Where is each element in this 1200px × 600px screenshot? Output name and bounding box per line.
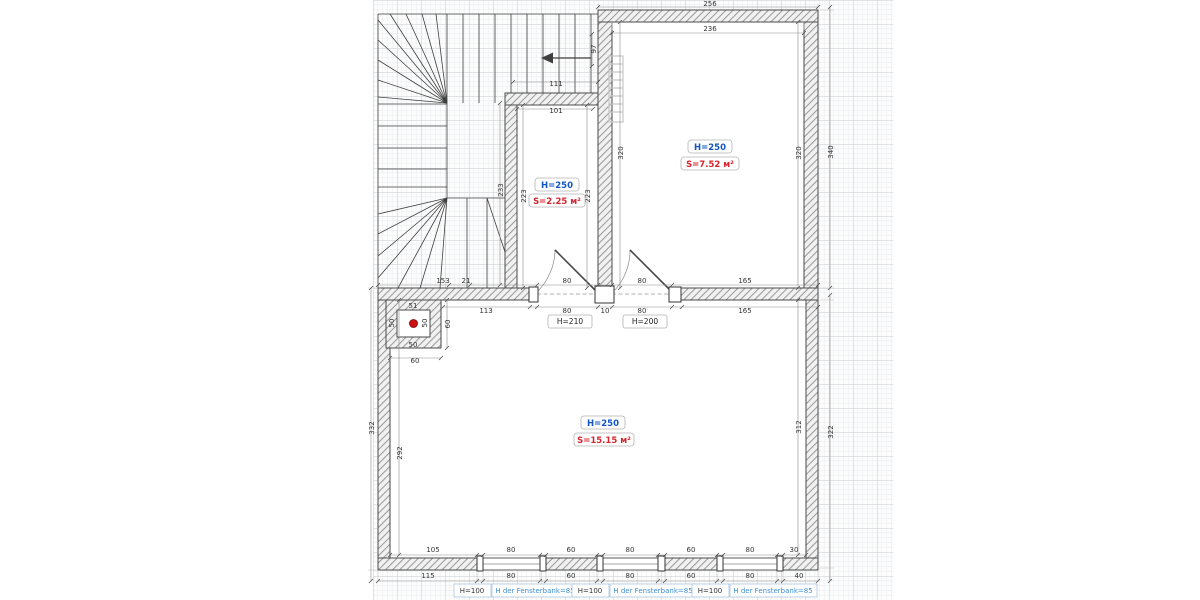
floor-plan-page: 2562369711110132032034023322322315321808… <box>0 0 1200 600</box>
dim-label: 80 <box>746 546 755 554</box>
window-1-labels: H=100 H der Fensterbank=85 <box>454 584 579 597</box>
door-post <box>669 287 681 302</box>
wall-segment-main-right <box>806 300 818 558</box>
room-area-label: S=15.15 м² <box>577 436 631 446</box>
wall-segment-band-left <box>378 288 537 300</box>
dim-label: 165 <box>738 277 751 285</box>
dim-label: 60 <box>411 357 420 365</box>
dim-label: 30 <box>790 546 799 554</box>
dim-label: 80 <box>507 572 516 580</box>
dim-label: 51 <box>409 302 418 310</box>
floor-plan-canvas: 2562369711110132032034023322322315321808… <box>0 0 1200 600</box>
dim-label: 10 <box>601 307 610 315</box>
dim-label: 153 <box>436 277 449 285</box>
wall-segment-bottom-3 <box>665 558 717 570</box>
window-3-labels: H=100 H der Fensterbank=85 <box>692 584 817 597</box>
dim-label: 101 <box>549 107 562 115</box>
dim-label: 320 <box>795 146 803 159</box>
dim-label: 50 <box>421 319 429 328</box>
window-height-label: H=100 <box>460 587 485 595</box>
wall-segment-upper-right <box>804 22 818 288</box>
wall-segment-small-left <box>505 105 517 288</box>
wall-segment-small-top <box>505 93 598 105</box>
dim-label: 80 <box>507 546 516 554</box>
wall-segment-bottom-1 <box>378 558 477 570</box>
dim-label: 60 <box>567 546 576 554</box>
dim-label: 165 <box>738 307 751 315</box>
room-height-label: H=250 <box>694 143 726 153</box>
window-1 <box>477 556 546 571</box>
window-3 <box>717 556 783 571</box>
dim-label: 320 <box>617 146 625 159</box>
door-left-label: H=210 <box>548 315 592 328</box>
dim-label: 40 <box>795 572 804 580</box>
door-height-label: H=200 <box>632 317 658 326</box>
dim-label: 312 <box>795 420 803 433</box>
dim-label: 236 <box>703 25 717 33</box>
window-sill-label: H der Fensterbank=85 <box>495 587 574 595</box>
dim-label: 60 <box>444 320 452 329</box>
dim-label: 80 <box>746 572 755 580</box>
vent-point-icon <box>410 320 418 328</box>
dim-label: 80 <box>563 277 572 285</box>
dim-label: 21 <box>462 277 471 285</box>
wall-segment-bottom-2 <box>546 558 597 570</box>
dim-label: 97 <box>590 45 598 54</box>
wall-segment-top <box>598 10 818 22</box>
room-height-label: H=250 <box>587 419 619 429</box>
room-area-label: S=2.25 м² <box>533 197 581 207</box>
dim-label: 60 <box>687 546 696 554</box>
window-height-label: H=100 <box>698 587 723 595</box>
dim-label: 340 <box>827 145 835 158</box>
dim-label: 111 <box>549 80 562 88</box>
dim-label: 80 <box>563 307 572 315</box>
dim-label: 256 <box>703 0 717 8</box>
dim-label: 322 <box>827 425 835 438</box>
door-post <box>595 286 614 303</box>
dim-label: 60 <box>687 572 696 580</box>
door-post <box>529 287 538 302</box>
window-sill-label: H der Fensterbank=85 <box>733 587 812 595</box>
dim-label: 60 <box>567 572 576 580</box>
window-2-labels: H=100 H der Fensterbank=85 <box>572 584 697 597</box>
dim-label: 105 <box>426 546 439 554</box>
window-2 <box>597 556 665 571</box>
room-area-label: S=7.52 м² <box>686 160 734 170</box>
dim-label: 80 <box>638 307 647 315</box>
dim-label: 50 <box>388 319 396 328</box>
window-height-label: H=100 <box>578 587 603 595</box>
dim-label: 113 <box>479 307 492 315</box>
dim-label: 292 <box>396 446 404 459</box>
dim-label: 115 <box>421 572 434 580</box>
dim-label: 80 <box>638 277 647 285</box>
wall-segment-upper-left <box>598 22 612 288</box>
room-upper-right-floor <box>612 22 804 288</box>
door-height-label: H=210 <box>557 317 583 326</box>
dim-label: 80 <box>626 546 635 554</box>
door-right-label: H=200 <box>623 315 667 328</box>
dim-label: 332 <box>368 421 376 434</box>
room-height-label: H=250 <box>541 181 573 191</box>
dim-label: 50 <box>409 341 418 349</box>
dim-label: 233 <box>497 183 505 196</box>
dim-label: 223 <box>520 189 528 202</box>
window-sill-label: H der Fensterbank=85 <box>613 587 692 595</box>
dim-label: 80 <box>626 572 635 580</box>
wall-segment-bottom-4 <box>783 558 818 570</box>
